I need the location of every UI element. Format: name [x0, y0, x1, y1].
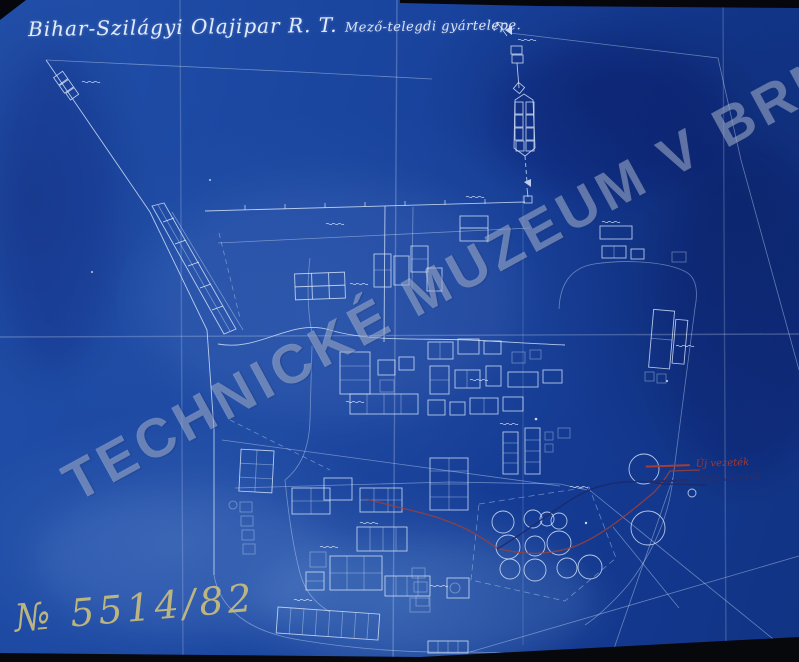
blueprint-scan: .b{fill:none;stroke:#d8e6fb;stroke-opaci… [0, 0, 799, 662]
site-plan-drawing: .b{fill:none;stroke:#d8e6fb;stroke-opaci… [0, 0, 799, 662]
paper-stains [0, 40, 799, 660]
plan-title-main: Bihar-Szilágyi Olajipar R. T. [28, 13, 338, 41]
legend-line-sample-new [646, 464, 690, 468]
map-legend: Új vezeték Régi vezeték [646, 453, 799, 488]
legend-label-old: Régi vezeték [696, 472, 761, 485]
legend-label-new: Új vezeték [696, 457, 750, 470]
plan-title-sub: Mező-telegdi gyártelepe. [345, 18, 522, 35]
legend-line-sample-old [646, 479, 690, 483]
